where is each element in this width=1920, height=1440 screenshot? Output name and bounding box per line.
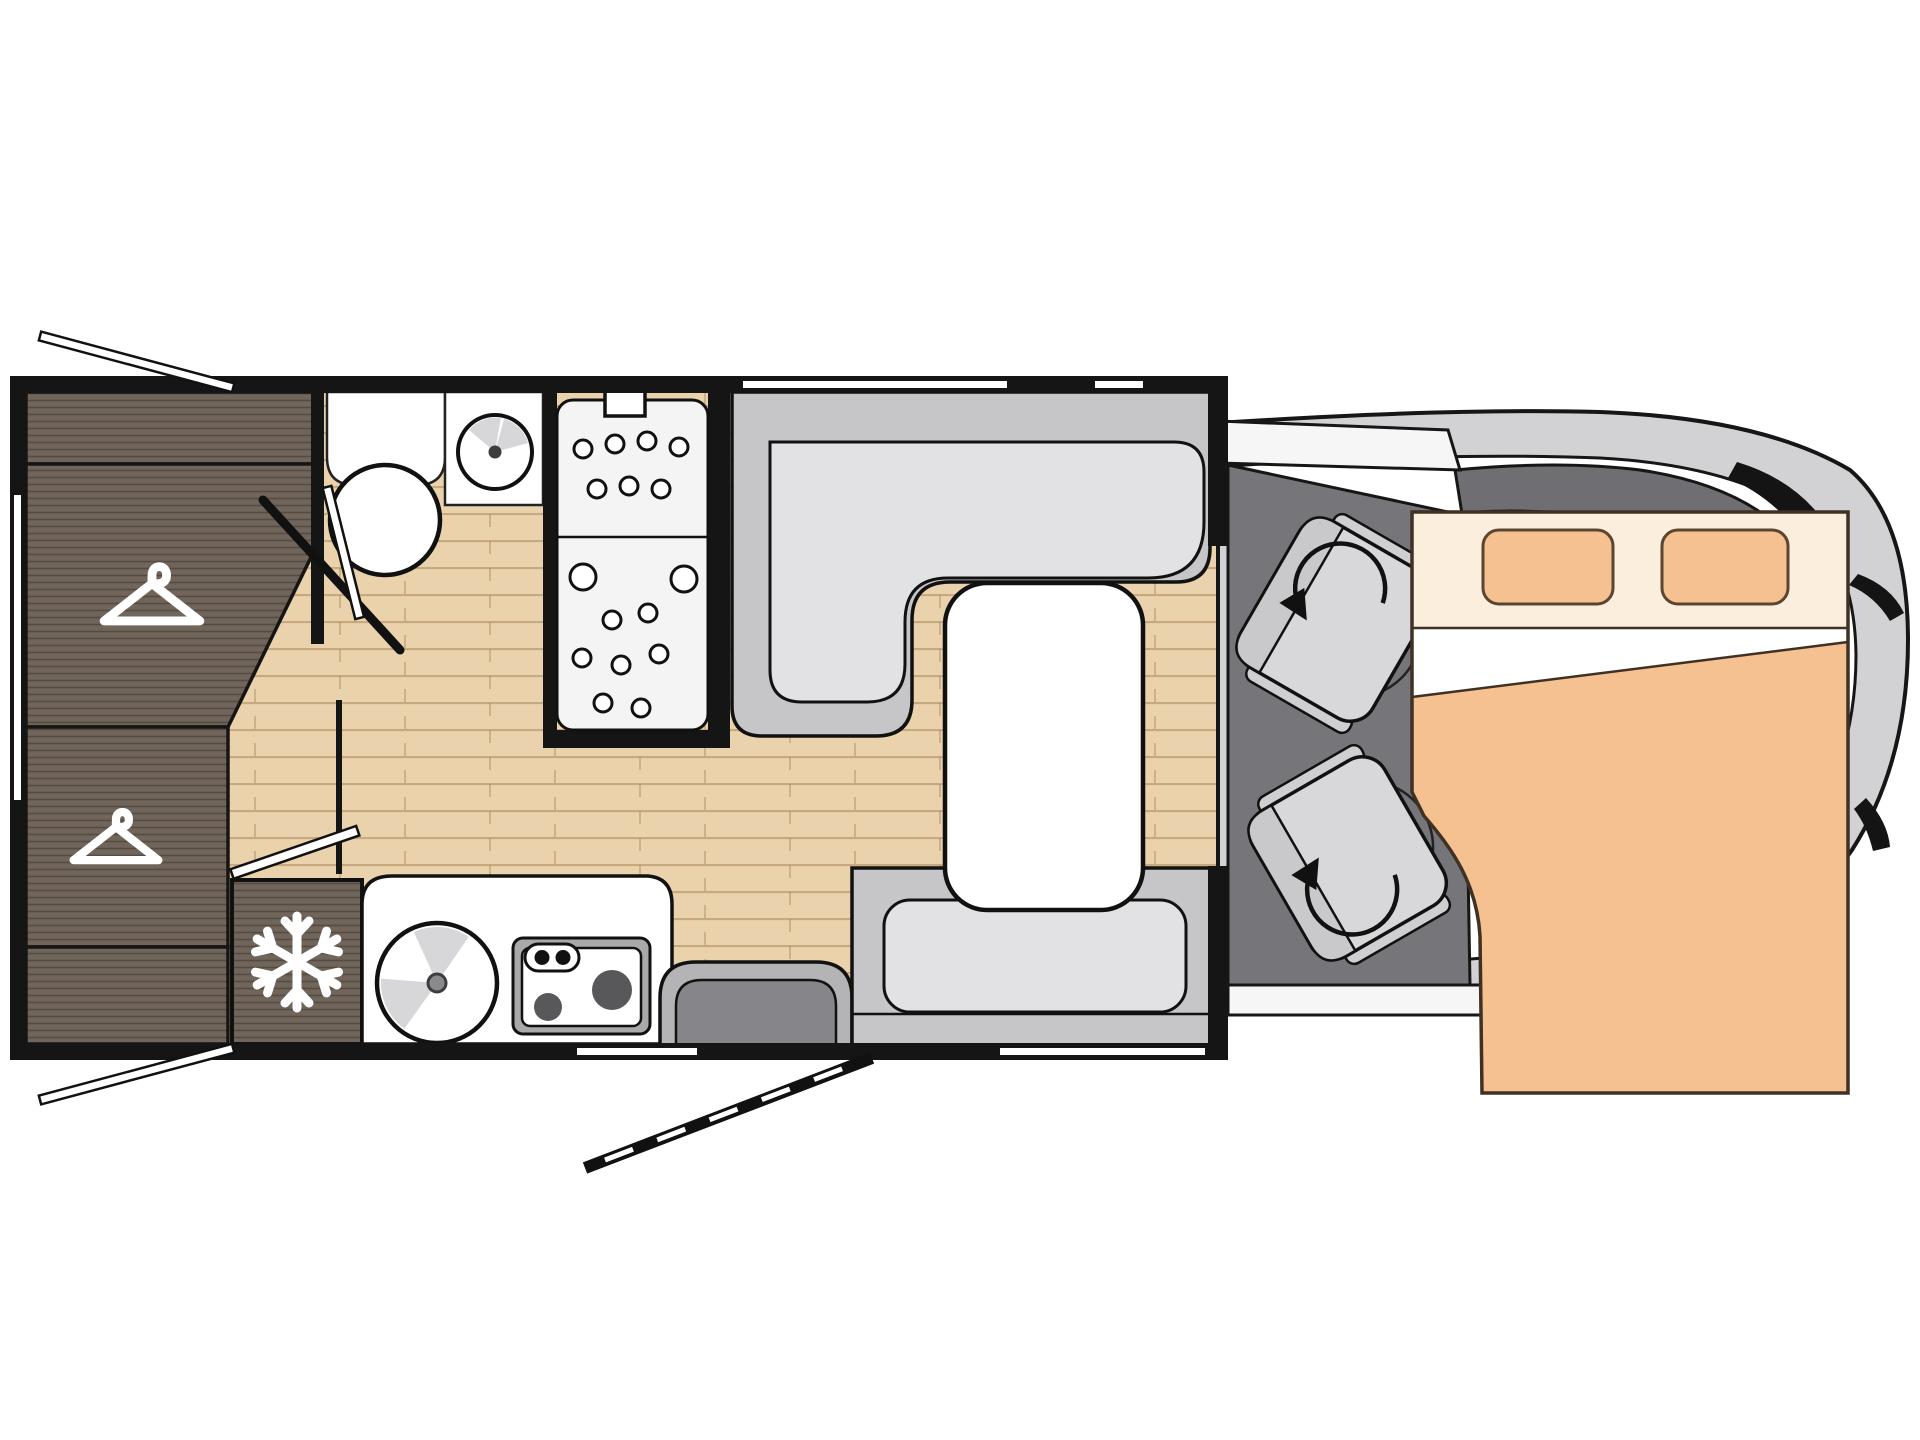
shower-wall-left xyxy=(543,392,557,748)
bench-cushion xyxy=(884,900,1186,1012)
kitchen xyxy=(232,876,672,1044)
wall-stub-bottom-right xyxy=(1208,866,1228,1060)
stove-controls xyxy=(525,944,579,971)
burner-large xyxy=(592,970,632,1010)
cab-sill-top xyxy=(1218,421,1460,470)
window-top xyxy=(743,381,1007,388)
bathroom-wall xyxy=(311,376,324,644)
floorplan-canvas: Motorhome floor plan (top view) xyxy=(0,0,1920,1440)
motorhome-floorplan: Motorhome floor plan (top view) xyxy=(0,0,1920,1440)
dinette-table xyxy=(945,583,1143,910)
wardrobe-base-cabinet xyxy=(26,947,228,1044)
pillow xyxy=(1483,530,1613,604)
wall-stub-top-right xyxy=(1208,376,1228,546)
window-bottom xyxy=(1000,1048,1205,1055)
pillow xyxy=(1662,530,1788,604)
overhead-cabinet xyxy=(26,392,317,464)
door-sill xyxy=(577,1048,697,1055)
window-rear xyxy=(14,495,21,800)
stove xyxy=(513,938,650,1034)
partition-post xyxy=(336,700,342,874)
shower-wall-bottom xyxy=(543,730,730,748)
entry-door-swing xyxy=(585,1058,872,1168)
burner-small xyxy=(534,993,562,1021)
entry-step xyxy=(660,962,852,1046)
shower-wall-right xyxy=(708,392,730,748)
window-top-small xyxy=(1095,381,1143,388)
cab-sill-bottom xyxy=(1228,985,1484,1015)
